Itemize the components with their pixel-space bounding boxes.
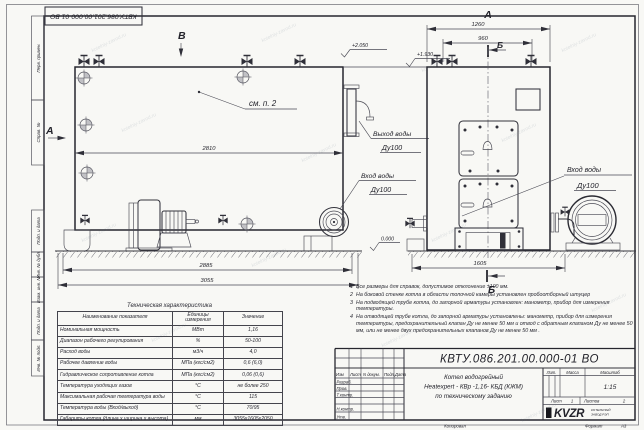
param-unit: МПа (кгс/см2): [173, 359, 224, 370]
svg-text:В: В: [178, 30, 186, 42]
note-item: 4На отводящей трубе котла, до запорной а…: [347, 314, 637, 334]
dimension-3055: 3055: [58, 253, 358, 289]
view-arrow-b: В: [178, 30, 186, 57]
outlet-label: Выход воды Ду100: [359, 121, 429, 153]
note-text: Все размеры для справок, допустимое откл…: [356, 284, 637, 291]
param-name: Габариты котла (длина х ширина х высота): [58, 415, 173, 426]
note-number: 1: [347, 284, 356, 291]
see-note-annotation: см. п. 2: [198, 91, 297, 109]
product-name-line3: по техническому заданию: [435, 393, 512, 400]
target-marker-icon: [235, 69, 252, 86]
product-name-line2: Heatexpert - КВр -1,16- КБД (КЖМ): [424, 384, 523, 391]
margin-stamp-label: Инв. № подл.: [36, 344, 41, 371]
table-row: Температура уходящих газов°Сне более 250: [58, 381, 283, 392]
sheet-value: 1: [571, 399, 573, 404]
row-razrab: Разраб.: [337, 379, 352, 384]
top-designation-stamp: КВТУ.086.201.00.000-01 ВО: [45, 7, 142, 25]
dim-text: 1260: [472, 22, 486, 28]
param-name: Температура уходящих газов: [58, 381, 173, 392]
svg-text:А: А: [45, 125, 54, 137]
blower-fan-front: [551, 196, 620, 250]
valve-icon: [79, 56, 90, 68]
note-item: 2На боковой стенке котла в области топоч…: [347, 292, 637, 299]
svg-text:Вход воды: Вход воды: [567, 166, 602, 174]
row-tkontr: Т.контр.: [337, 392, 354, 397]
param-name: Номинальная мощность: [58, 325, 173, 336]
inlet-flange: [320, 208, 349, 237]
param-value: 50-100: [224, 336, 283, 347]
param-value: не более 250: [224, 381, 283, 392]
mass-label: Масса: [566, 370, 579, 375]
sheet-label: Лист: [550, 399, 562, 404]
title-block: КВТУ.086.201.00.000-01 ВО Изм Лист N док…: [335, 349, 635, 429]
note-text: На боковой стенке котла в области топочн…: [356, 292, 637, 299]
level-mark-top: +2.050: [341, 43, 387, 57]
dim-text: 2885: [199, 263, 214, 269]
param-value: 4,0: [224, 347, 283, 358]
valve-icon: [94, 56, 105, 68]
inlet-label-front: Вход воды Ду100: [462, 166, 632, 216]
margin-stamp-label: Подп. и дата: [36, 307, 41, 335]
param-unit: %: [173, 336, 224, 347]
svg-text:0.000: 0.000: [381, 237, 394, 243]
ground-hatch: [55, 252, 362, 258]
param-name: Максимальная рабочая температура воды: [58, 392, 173, 403]
view-label-a: А: [483, 9, 492, 21]
param-value: 1,16: [224, 325, 283, 336]
param-value: 115: [224, 392, 283, 403]
tech-table-title: Техническая характеристика: [57, 303, 282, 309]
param-unit: °С: [173, 392, 224, 403]
tech-header: Единицы измерения: [173, 311, 224, 325]
product-name-line1: Котел водогрейный: [444, 374, 503, 381]
note-item: 1Все размеры для справок, допустимое отк…: [347, 284, 637, 291]
valve-icon: [432, 56, 443, 68]
logo-sub1: КОТЕЛЬНЫЙ: [591, 408, 611, 412]
nameplate: [516, 89, 540, 110]
scale-value: 1:15: [604, 384, 617, 391]
param-value: 70/95: [224, 403, 283, 414]
note-item: 3На подводящей трубе котла, до запорной …: [347, 300, 637, 314]
door-latch: [461, 203, 474, 207]
table-row: Рабочее давление водыМПа (кгс/см2)0,6 (6…: [58, 359, 283, 370]
param-name: Расход воды: [58, 347, 173, 358]
tech-characteristics: Техническая характеристика Наименование …: [57, 303, 282, 426]
param-value: 0,6 (6,0): [224, 359, 283, 370]
upper-door: [459, 121, 518, 176]
param-value: 3055х1605х2050: [224, 415, 283, 426]
note-number: 4: [347, 314, 356, 334]
valve-icon: [218, 215, 227, 225]
row-nkontr: Н.контр.: [337, 407, 355, 412]
valve-icon: [526, 56, 537, 68]
dim-text: 1605: [474, 261, 488, 267]
param-unit: °С: [173, 403, 224, 414]
lower-door: [459, 179, 518, 228]
margin-stamp-label: Перв. примен.: [36, 43, 41, 72]
table-row: Максимальная рабочая температура воды°С1…: [58, 392, 283, 403]
format-label: Формат: [585, 424, 603, 429]
table-row: Температура воды (Вход/выход)°С70/95: [58, 403, 283, 414]
note-text: На отводящей трубе котла, до запорной ар…: [356, 314, 637, 334]
kvzr-logo-text: KVZR: [554, 408, 585, 420]
col-podp: Подп.: [384, 372, 395, 377]
inlet-pipe-front: [405, 216, 427, 251]
pump-bracket: [304, 236, 332, 251]
svg-text:Выход воды: Выход воды: [373, 130, 411, 138]
param-name: Гидравлическое сопротивление котла: [58, 370, 173, 381]
valve-icon: [242, 56, 253, 68]
row-prov: Пров.: [337, 386, 348, 391]
level-mark-mid: +1.930: [343, 52, 452, 67]
target-marker-icon: [78, 117, 95, 134]
ground-hatch: [408, 252, 636, 258]
svg-text:Б: Б: [497, 40, 503, 50]
outlet-pipe: [344, 85, 374, 137]
format-value: А3: [620, 424, 627, 429]
view-arrow-a: А: [45, 125, 66, 140]
note-text: На подводящей трубе котла, до запорной а…: [356, 300, 637, 314]
top-designation-text: КВТУ.086.201.00.000-01 ВО: [50, 13, 137, 20]
dim-text: 3055: [201, 278, 215, 284]
row-utv: Утв.: [337, 414, 347, 419]
boiler-foot: [64, 230, 90, 251]
tech-header: Наименование показателя: [58, 311, 173, 325]
valve-icon: [80, 215, 89, 225]
margin-stamp-label: Взам. инв. №: [36, 276, 41, 303]
copied-label: Копировал: [444, 424, 466, 429]
lit-label: Лит.: [546, 370, 557, 375]
tech-header: Значение: [224, 311, 283, 325]
boiler-side-view: 2810 2885 3055 А В: [45, 30, 452, 289]
param-unit: м3/ч: [173, 347, 224, 358]
margin-stamp-label: Подп. и дата: [36, 217, 41, 245]
base-plinth: [455, 228, 523, 250]
col-list: Лист: [349, 372, 361, 377]
dim-text: 960: [478, 36, 488, 42]
sheets-value: 2: [622, 399, 626, 404]
svg-text:+1.930: +1.930: [417, 52, 433, 58]
logo-sub2: ЗАВОД РЭП: [591, 413, 610, 417]
left-margin-stamps: Перв. примен. Справ. № Подп. и дата Инв.…: [32, 16, 45, 376]
section-mark-b-top: Б: [488, 40, 506, 57]
drawing-sheet: КВТУ.086.201.00.000-01 ВО Перв. примен. …: [0, 0, 644, 430]
boiler-front-view: А 1260 960 Б: [405, 9, 636, 296]
door-latch: [461, 151, 474, 155]
table-row: Диапазон рабочего регулирования%50-100: [58, 336, 283, 347]
table-row: Расход водым3/ч4,0: [58, 347, 283, 358]
svg-text:+2.050: +2.050: [352, 43, 368, 49]
param-unit: МВт: [173, 325, 224, 336]
table-row: Габариты котла (длина х ширина х высота)…: [58, 415, 283, 426]
table-row: Номинальная мощностьМВт1,16: [58, 325, 283, 336]
door-handle-icon: [483, 142, 492, 150]
param-name: Рабочее давление воды: [58, 359, 173, 370]
note-number: 2: [347, 292, 356, 299]
valve-icon: [405, 218, 414, 228]
note-number: 3: [347, 300, 356, 314]
dim-text: 2810: [202, 146, 217, 152]
sheets-label: Листов: [583, 399, 600, 404]
table-row: Гидравлическое сопротивление котлаМПа (к…: [58, 370, 283, 381]
target-marker-icon: [79, 165, 96, 182]
svg-text:Ду100: Ду100: [576, 181, 599, 190]
svg-text:см. п. 2: см. п. 2: [249, 99, 277, 108]
blower-motor-assembly: [126, 200, 199, 251]
svg-text:Ду100: Ду100: [370, 187, 391, 194]
col-data: Дата: [394, 372, 407, 377]
col-izm: Изм: [336, 372, 344, 377]
param-value: 0,06 (0,6): [224, 370, 283, 381]
notes-list: 1Все размеры для справок, допустимое отк…: [347, 284, 637, 335]
tech-table: Наименование показателя Единицы измерени…: [57, 311, 283, 427]
margin-stamp-label: Справ. №: [36, 122, 41, 142]
level-mark-zero: 0.000: [370, 237, 400, 251]
kvzr-logo-icon: [546, 408, 552, 419]
inlet-label-side: Вход воды Ду100: [340, 172, 416, 209]
scale-label: Масштаб: [600, 370, 620, 375]
target-marker-icon: [76, 70, 93, 87]
param-unit: °С: [173, 381, 224, 392]
param-name: Температура воды (Вход/выход): [58, 403, 173, 414]
dimension-2810: 2810: [75, 146, 343, 155]
param-name: Диапазон рабочего регулирования: [58, 336, 173, 347]
param-unit: МПа (кгс/см2): [173, 370, 224, 381]
col-docnum: N докум.: [363, 372, 380, 377]
margin-stamp-label: Инв. № дубл.: [36, 251, 41, 278]
svg-text:Ду100: Ду100: [381, 145, 402, 152]
param-unit: мм: [173, 415, 224, 426]
valve-icon: [295, 56, 306, 68]
boiler-body-front: [427, 67, 550, 250]
valve-icon: [447, 56, 458, 68]
titleblock-designation: КВТУ.086.201.00.000-01 ВО: [440, 354, 599, 366]
svg-text:Вход воды: Вход воды: [361, 172, 394, 180]
